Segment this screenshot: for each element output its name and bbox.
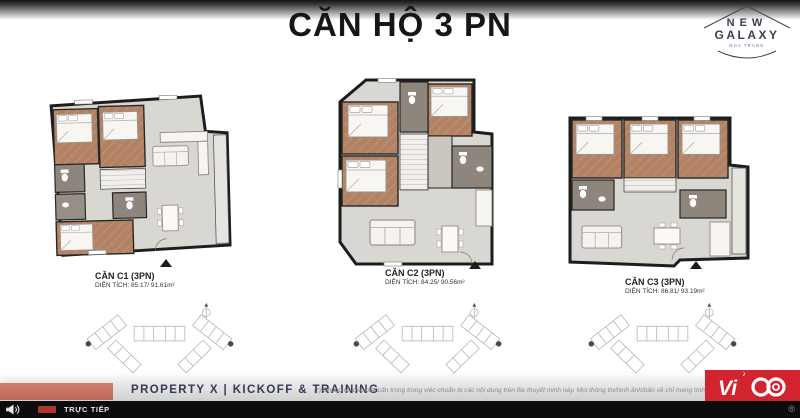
window [586, 117, 602, 121]
slide-frame: CĂN HỘ 3 PN NEW GALAXY NHA TRANG [0, 0, 800, 418]
window [75, 100, 93, 104]
bathroom-2 [55, 194, 85, 220]
bathroom-2 [452, 146, 492, 188]
window [384, 262, 402, 266]
footer-accent-rect [0, 383, 113, 400]
new-galaxy-logo: NEW GALAXY NHA TRANG [700, 1, 794, 65]
entry-marker-c3 [690, 261, 702, 269]
disclaimer-text: (*) Chúng tôi đặc biệt cẩn trọng trong v… [314, 387, 706, 394]
site-keyplan-c2 [330, 302, 525, 374]
wardrobe [624, 178, 676, 192]
kitchen-counter [160, 131, 208, 142]
logo-tagline: NHA TRANG [729, 43, 764, 48]
caption-c1: CĂN C1 (3PN) DIỆN TÍCH: 85.17/ 91.61m² [95, 271, 245, 290]
caption-c2: CĂN C2 (3PN) DIỆN TÍCH: 84.25/ 90.56m² [385, 268, 535, 287]
window [642, 117, 658, 121]
bathroom-2 [680, 190, 726, 218]
window [694, 117, 710, 121]
site-keyplan-c1 [62, 302, 257, 374]
live-label: TRỰC TIẾP [64, 405, 110, 414]
tower-location-dot [496, 341, 501, 346]
unit-area-c2: DIỆN TÍCH: 84.25/ 90.56m² [385, 279, 535, 287]
site-keyplan-c3 [565, 302, 760, 374]
hallway [428, 136, 452, 188]
caption-c3: CĂN C3 (3PN) DIỆN TÍCH: 86.81/ 93.19m² [625, 277, 775, 296]
floor-plan-c2 [326, 74, 498, 272]
unit-area-c3: DIỆN TÍCH: 86.81/ 93.19m² [625, 288, 775, 296]
floor-plan-c3 [560, 110, 752, 275]
unit-name-c1: CĂN C1 (3PN) [95, 271, 245, 282]
window [338, 170, 342, 188]
window [159, 95, 177, 99]
unit-area-c1: DIỆN TÍCH: 85.17/ 91.61m² [95, 282, 245, 290]
tower-location-dot [589, 341, 594, 346]
tower-location-dot [228, 341, 233, 346]
status-bar [0, 401, 800, 418]
wardrobe [400, 134, 428, 190]
balcony [213, 135, 229, 244]
tower-location-dot [86, 341, 91, 346]
tower-location-dot [354, 341, 359, 346]
bathroom-1 [572, 180, 614, 210]
balcony [732, 168, 746, 254]
live-indicator [38, 406, 56, 413]
bathroom-1 [400, 82, 428, 132]
speaker-icon[interactable] [6, 404, 21, 415]
vico-logo: Vi [705, 370, 800, 403]
window [378, 79, 396, 83]
logo-line2: GALAXY [714, 28, 779, 42]
bathroom-1 [55, 164, 85, 192]
unit-name-c2: CĂN C2 (3PN) [385, 268, 535, 279]
entry-marker-c1 [160, 259, 172, 267]
kitchen-counter [710, 222, 730, 256]
tower-location-dot [731, 341, 736, 346]
registered-mark-icon: ® [788, 404, 795, 414]
floor-plan-c1 [41, 74, 238, 271]
page-title: CĂN HỘ 3 PN [0, 6, 800, 44]
unit-name-c3: CĂN C3 (3PN) [625, 277, 775, 288]
vico-logo-text: Vi [718, 377, 738, 400]
kitchen-counter [476, 190, 492, 226]
wardrobe [100, 168, 146, 189]
window [88, 250, 106, 254]
